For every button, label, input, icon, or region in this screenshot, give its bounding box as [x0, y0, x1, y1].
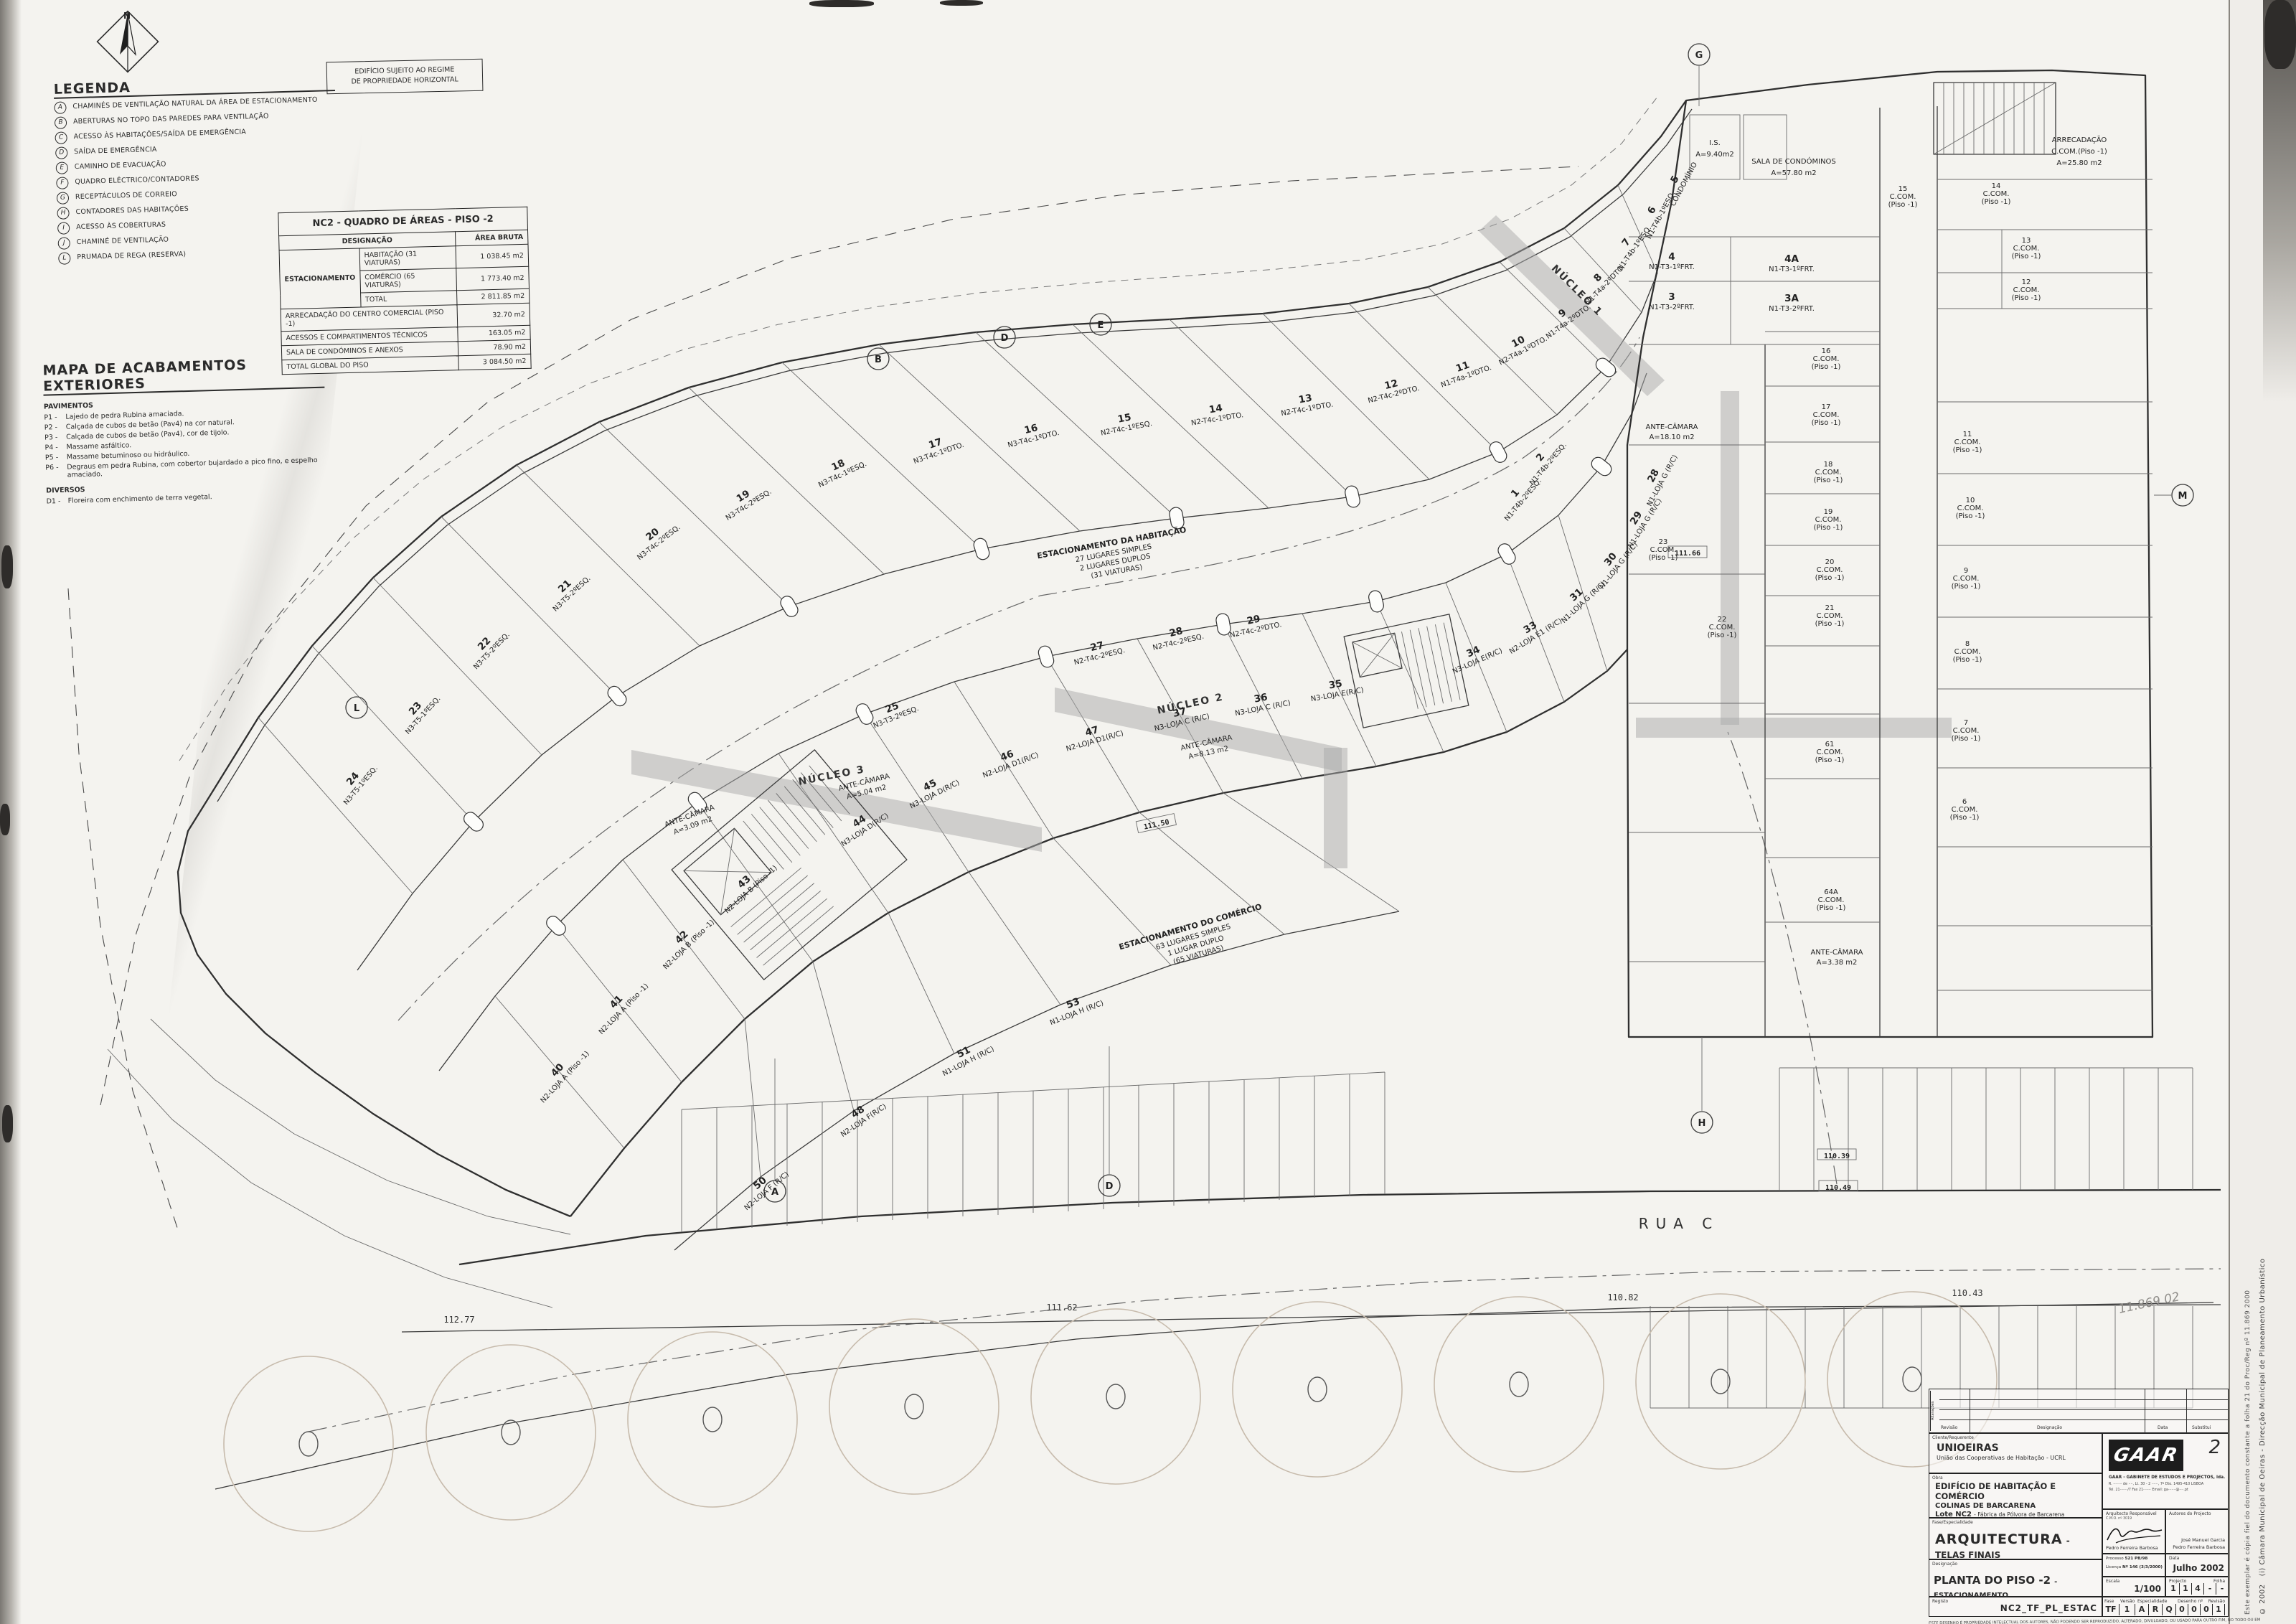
revision-col: Revisão — [1941, 1425, 1957, 1430]
parking-stall-label: 46N2-LOJA D1(R/C) — [977, 740, 1040, 780]
svg-text:C.COM.: C.COM. — [1813, 411, 1840, 419]
parking-stall-label: 43N2-LOJA B (Piso -1) — [715, 855, 779, 915]
storage-stall-label: 15C.COM.(Piso -1) — [1888, 185, 1918, 209]
svg-text:C.COM.: C.COM. — [1815, 516, 1842, 524]
svg-text:23: 23 — [1659, 538, 1668, 546]
svg-text:I.S.: I.S. — [1709, 139, 1721, 147]
svg-text:C.COM.: C.COM. — [1952, 806, 1978, 814]
parking-note-comercio: ESTACIONAMENTO DO COMÉRCIO 63 LUGARES SI… — [1118, 902, 1271, 980]
drawing-title-cell: Designação PLANTA DO PISO -2 - ESTACIONA… — [1929, 1559, 2102, 1597]
revision-col: Substitui — [2192, 1425, 2211, 1430]
parking-stall-label: 19N3-T4c-2ºESQ. — [718, 478, 773, 522]
antecamara-label: ANTE-CÂMARAA=18.10 m2 — [1645, 422, 1698, 441]
svg-text:110.49: 110.49 — [1825, 1184, 1851, 1192]
storage-stall-label: 13C.COM.(Piso -1) — [2012, 237, 2041, 261]
parking-stall-label: 20N3-T4c-2ºESQ. — [629, 514, 682, 562]
svg-text:111.66: 111.66 — [1675, 550, 1700, 558]
svg-text:C.COM.: C.COM. — [1957, 504, 1984, 512]
svg-text:A=57.80 m2: A=57.80 m2 — [1771, 169, 1816, 177]
parking-stall-label: 36N3-LOJA C (R/C) — [1232, 687, 1291, 718]
svg-text:C.COM.: C.COM. — [1817, 566, 1843, 574]
logo-cell: GAAR 2 GAAR - GABINETE DE ESTUDOS E PROJ… — [2102, 1433, 2229, 1509]
svg-text:21: 21 — [1825, 604, 1835, 612]
svg-text:(Piso -1): (Piso -1) — [1956, 512, 1985, 520]
svg-text:C.COM.: C.COM. — [1650, 546, 1677, 554]
svg-text:C.COM.: C.COM. — [1818, 896, 1845, 904]
code-strip: Fase Versão Especialidade Desenho nº Rev… — [2102, 1597, 2229, 1617]
antecamara-label: ANTE-CÂMARAA=3.09 m2 — [663, 802, 719, 838]
svg-text:(Piso -1): (Piso -1) — [1812, 419, 1841, 427]
svg-text:L: L — [354, 703, 359, 714]
street-rua-c: RUA C 112.77 111.62 110.82 110.43 — [215, 1190, 2221, 1489]
svg-text:(Piso -1): (Piso -1) — [1982, 198, 2011, 206]
svg-text:(Piso -1): (Piso -1) — [1952, 583, 1981, 591]
margin-copyright: © 2002 (i) Câmara Municipal de Oeiras - … — [2259, 919, 2267, 1615]
lot-sub: - Fábrica da Pólvora de Barcarena — [1974, 1511, 2064, 1518]
parking-stall-label: 25N3-T3-2ºESQ. — [867, 693, 920, 730]
register-code: NC2_TF_PL_ESTAC — [2000, 1603, 2097, 1613]
svg-text:111.50: 111.50 — [1143, 818, 1170, 831]
svg-text:A=25.80 m2: A=25.80 m2 — [2056, 159, 2102, 167]
svg-text:E: E — [1098, 320, 1104, 331]
svg-text:112.77: 112.77 — [443, 1315, 474, 1325]
svg-text:C.COM.: C.COM. — [2013, 245, 2040, 253]
svg-text:(Piso -1): (Piso -1) — [1814, 524, 1843, 532]
wing-storage-labels: 16C.COM.(Piso -1) 17C.COM.(Piso -1) 18C.… — [1649, 182, 2041, 912]
parking-stall-label: 28N1-LOJA G (R/C) — [1635, 448, 1680, 507]
storage-stall-label: 20C.COM.(Piso -1) — [1815, 558, 1845, 582]
svg-text:N1-T3-1ºFRT.: N1-T3-1ºFRT. — [1649, 263, 1695, 271]
author-name: Pedro Ferreira Barbosa — [2173, 1544, 2225, 1550]
svg-text:8: 8 — [1965, 640, 1970, 648]
project-cell: Obra EDIFÍCIO DE HABITAÇÃO E COMÉRCIO CO… — [1929, 1473, 2102, 1518]
svg-text:16: 16 — [1822, 347, 1831, 355]
scale-value: 1/100 — [2134, 1584, 2161, 1594]
storage-stall-label: 14C.COM.(Piso -1) — [1982, 182, 2011, 206]
svg-text:N1-T4b-2ºESQ.: N1-T4b-2ºESQ. — [1503, 477, 1543, 523]
storage-stall-label: 17C.COM.(Piso -1) — [1812, 403, 1841, 427]
svg-text:D: D — [1001, 333, 1009, 344]
parking-stall-label: 15N2-T4c-1ºESQ. — [1098, 408, 1153, 437]
svg-text:N3-T4c-2ºESQ.: N3-T4c-2ºESQ. — [636, 523, 682, 562]
parking-stall-label: 35N3-LOJA E(R/C) — [1308, 675, 1365, 704]
svg-text:18: 18 — [1824, 461, 1833, 469]
svg-text:N3-T5-2ºESQ.: N3-T5-2ºESQ. — [472, 631, 512, 671]
antecamara-label: ANTE-CÂMARAA=3.38 m2 — [1810, 947, 1863, 967]
client-cell: Cliente/Requerente UNIOEIRAS União das C… — [1929, 1433, 2102, 1473]
svg-text:4A: 4A — [1784, 253, 1799, 265]
firm-address: R. ········ de ····, Lt. 30 - 2 ······, … — [2109, 1483, 2203, 1486]
storage-stall-label: 9C.COM.(Piso -1) — [1952, 567, 1981, 591]
drawing-sheet: N EDIFÍCIO SUJEITO AO REGIME DE PROPRIED… — [0, 0, 2296, 1624]
svg-text:9: 9 — [1964, 567, 1968, 575]
svg-text:110.39: 110.39 — [1824, 1153, 1850, 1160]
floor-plan: RUA C 112.77 111.62 110.82 110.43 — [0, 0, 2296, 1624]
date-value: Julho 2002 — [2173, 1563, 2224, 1573]
storage-stall-label: 18C.COM.(Piso -1) — [1814, 461, 1843, 484]
svg-text:N2-LOJA A (Piso -1): N2-LOJA A (Piso -1) — [540, 1050, 591, 1104]
svg-text:C.COM.: C.COM. — [1815, 469, 1842, 477]
revision-col: Data — [2158, 1425, 2168, 1430]
svg-text:(Piso -1): (Piso -1) — [1812, 363, 1841, 371]
parking-stall-label: 28N2-T4c-2ºESQ. — [1149, 621, 1205, 652]
svg-text:C.COM.: C.COM. — [1813, 355, 1840, 363]
authors-cell: Autores do Projecto José Manuel Garcia P… — [2165, 1509, 2229, 1554]
nucleo2-label: NÚCLEO 2 — [1156, 690, 1225, 716]
parking-stall-label: 40N2-LOJA A (Piso -1) — [530, 1041, 591, 1104]
architect-reg: C.M.O. nº 3019 — [2106, 1517, 2132, 1521]
svg-text:M: M — [2178, 491, 2188, 502]
svg-text:(Piso -1): (Piso -1) — [1950, 814, 1980, 822]
right-wing — [1627, 70, 2152, 1037]
svg-text:10: 10 — [1966, 497, 1975, 504]
drive-aisle-centerline — [398, 337, 1837, 1184]
revision-table: Alterações Revisão Designação Data Subst… — [1929, 1389, 2229, 1433]
svg-text:N3-T5-2ºESQ.: N3-T5-2ºESQ. — [552, 575, 593, 614]
parking-stall-label: 2N1-T4b-2ºESQ. — [1519, 433, 1568, 487]
storage-stall-label: 21C.COM.(Piso -1) — [1815, 604, 1845, 628]
surface-parking — [682, 1068, 2193, 1408]
parking-stall-label: 51N1-LOJA H (R/C) — [936, 1034, 995, 1078]
svg-text:11: 11 — [1963, 431, 1972, 438]
firm-contacts: Tel. 21·······/7 Fax 21······· Email: ga… — [2109, 1488, 2188, 1492]
room-sala-condominos: SALA DE CONDÓMINOS A=57.80 m2 — [1751, 156, 1836, 177]
phase-cell: Fase/Especialidade ARQUITECTURA - TELAS … — [1929, 1518, 2102, 1559]
architect-name: Pedro Ferreira Barbosa — [2106, 1545, 2158, 1551]
svg-text:A=3.38 m2: A=3.38 m2 — [1817, 959, 1858, 967]
storage-stall-label: 12C.COM.(Piso -1) — [2012, 278, 2041, 302]
room-is: I.S. A=9.40m2 — [1695, 139, 1734, 159]
parking-stall-label: 31N1-LOJA G (R/C) — [1552, 571, 1607, 625]
drawing-title: PLANTA DO PISO -2 — [1934, 1574, 2051, 1587]
svg-text:C.COM.: C.COM. — [1817, 612, 1843, 620]
firm-name: GAAR - GABINETE DE ESTUDOS E PROJECTOS, … — [2109, 1475, 2225, 1480]
svg-text:(Piso -1): (Piso -1) — [1953, 656, 1982, 664]
svg-text:N1-T3-2ºFRT.: N1-T3-2ºFRT. — [1769, 305, 1815, 313]
svg-text:N3-T5-1ºESQ.: N3-T5-1ºESQ. — [342, 764, 380, 807]
storage-stall-label: 16C.COM.(Piso -1) — [1812, 347, 1841, 371]
svg-text:(Piso -1): (Piso -1) — [1708, 632, 1737, 639]
svg-text:C.COM.: C.COM. — [1983, 190, 2010, 198]
parking-stall-label: 41N2-LOJA A (Piso -1) — [589, 974, 651, 1036]
storage-stall-label: 64AC.COM.(Piso -1) — [1817, 888, 1846, 912]
svg-text:A=18.10 m2: A=18.10 m2 — [1649, 433, 1694, 441]
revision-col: Designação — [2037, 1425, 2062, 1430]
svg-text:13: 13 — [2022, 237, 2031, 245]
svg-text:SALA DE CONDÓMINOS: SALA DE CONDÓMINOS — [1751, 156, 1836, 166]
svg-text:G: G — [1695, 50, 1703, 61]
svg-text:(Piso -1): (Piso -1) — [1815, 756, 1845, 764]
svg-text:19: 19 — [1824, 508, 1833, 516]
storage-stall-label: 10C.COM.(Piso -1) — [1956, 497, 1985, 520]
svg-text:N3-T5-1ºESQ.: N3-T5-1ºESQ. — [404, 695, 442, 736]
svg-text:H: H — [1698, 1118, 1706, 1129]
phase-text: ARQUITECTURA — [1935, 1531, 2063, 1547]
storage-stall-label: 61C.COM.(Piso -1) — [1815, 741, 1845, 764]
svg-text:ANTE-CÂMARA: ANTE-CÂMARA — [1810, 947, 1863, 957]
svg-text:C.COM.: C.COM. — [1954, 438, 1981, 446]
project-title: EDIFÍCIO DE HABITAÇÃO E COMÉRCIO — [1935, 1481, 2102, 1501]
sheet-number: 2 — [2208, 1437, 2221, 1458]
svg-text:(Piso -1): (Piso -1) — [1953, 446, 1982, 454]
date-cell: Data Julho 2002 — [2165, 1554, 2229, 1577]
svg-text:61: 61 — [1825, 741, 1835, 748]
storage-stall-label: 8C.COM.(Piso -1) — [1953, 640, 1982, 664]
parking-stall-label: 4AN1-T3-1ºFRT. — [1769, 253, 1815, 273]
svg-text:A=9.40m2: A=9.40m2 — [1695, 151, 1734, 159]
building-band — [178, 100, 1692, 1250]
svg-text:C.COM.: C.COM. — [1817, 748, 1843, 756]
client-sub: União das Cooperativas de Habitação - UC… — [1937, 1455, 2102, 1461]
svg-text:B: B — [875, 355, 882, 365]
parking-stall-label: 45N3-LOJA D(R/C) — [903, 768, 961, 811]
svg-text:(Piso -1): (Piso -1) — [1815, 574, 1845, 582]
storage-stall-label: 19C.COM.(Piso -1) — [1814, 508, 1843, 532]
svg-text:C.COM.: C.COM. — [1953, 727, 1980, 735]
parking-stall-label: 4N1-T3-1ºFRT. — [1649, 251, 1695, 271]
parking-stall-label: 27N2-T4c-2ºESQ. — [1071, 635, 1126, 667]
parking-stall-label: 10N2-T4a-1ºDTO. — [1492, 324, 1549, 367]
svg-text:110.43: 110.43 — [1952, 1288, 1982, 1298]
parking-stall-label: 23N3-T5-1ºESQ. — [395, 687, 443, 736]
svg-text:3: 3 — [1668, 291, 1675, 303]
parking-stall-label: 13N2-T4c-1ºDTO. — [1279, 389, 1334, 418]
svg-text:110.82: 110.82 — [1607, 1292, 1638, 1303]
svg-text:(Piso -1): (Piso -1) — [2012, 253, 2041, 261]
svg-text:C.COM.: C.COM. — [1890, 193, 1916, 201]
svg-text:(Piso -1): (Piso -1) — [2012, 294, 2041, 302]
parking-stall-label: 24N3-T5-1ºESQ. — [333, 756, 380, 807]
scale-cell: Escala 1/100 — [2102, 1577, 2165, 1597]
stall-dividers-bottom — [495, 515, 1607, 1177]
margin-certification: Este exemplar é cópia fiel do documento … — [2244, 919, 2252, 1615]
project-sub: COLINAS DE BARCARENA — [1935, 1502, 2102, 1510]
svg-text:3A: 3A — [1784, 293, 1799, 304]
svg-text:CONDOMÍNIO: CONDOMÍNIO — [1668, 160, 1699, 207]
parking-stall-label: 50N2-LOJA F (R/C) — [735, 1161, 791, 1212]
svg-text:(Piso -1): (Piso -1) — [1815, 620, 1845, 628]
storage-stall-label: 23C.COM.(Piso -1) — [1649, 538, 1678, 562]
svg-text:7: 7 — [1964, 719, 1968, 727]
svg-text:ARRECADAÇÃO: ARRECADAÇÃO — [2052, 135, 2107, 144]
svg-text:N1-T3-1ºFRT.: N1-T3-1ºFRT. — [1769, 266, 1815, 273]
svg-text:N2-LOJA B (Piso -1): N2-LOJA B (Piso -1) — [662, 919, 717, 971]
svg-text:12: 12 — [2022, 278, 2031, 286]
client-name: UNIOEIRAS — [1937, 1442, 2102, 1454]
street-name: RUA C — [1639, 1215, 1720, 1232]
parking-stall-label: 17N3-T4c-1ºDTO. — [908, 430, 965, 466]
parking-stall-label: 16N3-T4c-1ºDTO. — [1004, 417, 1060, 449]
process-cell: Processo 521 PB/98 Licença Nº 146 (3/3/2… — [2102, 1554, 2165, 1577]
room-arrecadacao: ARRECADAÇÃO C.COM.(Piso -1) A=25.80 m2 — [2051, 135, 2107, 167]
svg-text:14: 14 — [1992, 182, 2001, 190]
svg-text:C.COM.: C.COM. — [1954, 648, 1981, 656]
svg-text:(Piso -1): (Piso -1) — [1814, 477, 1843, 484]
svg-text:N2-LOJA A (Piso -1): N2-LOJA A (Piso -1) — [598, 982, 650, 1036]
parking-stall-label: 3AN1-T3-2ºFRT. — [1769, 293, 1815, 313]
svg-text:(Piso -1): (Piso -1) — [1952, 735, 1981, 743]
svg-text:35: 35 — [1328, 678, 1343, 692]
svg-text:14: 14 — [1208, 403, 1223, 416]
svg-text:17: 17 — [1822, 403, 1831, 411]
parking-stall-label: 21N3-T5-2ºESQ. — [543, 565, 592, 613]
stair-core-nucleo2 — [1344, 614, 1469, 728]
title-block: Alterações Revisão Designação Data Subst… — [1929, 1389, 2229, 1617]
level-badge: 110.39 — [1817, 1149, 1856, 1160]
svg-text:22: 22 — [1718, 616, 1727, 624]
level-badge: 111.50 — [1136, 814, 1176, 833]
parking-stall-label: 33N2-LOJA E1 (R/C) — [1502, 606, 1563, 655]
svg-text:N2-LOJA F(R/C): N2-LOJA F(R/C) — [839, 1102, 888, 1139]
parking-stall-label: 14N2-T4c-1ºDTO. — [1189, 399, 1244, 427]
parking-stall-label: 3N1-T3-2ºFRT. — [1649, 291, 1695, 311]
exterior-stair — [1934, 83, 2056, 154]
svg-text:N1-T3-2ºFRT.: N1-T3-2ºFRT. — [1649, 304, 1695, 311]
parking-stall-label: 11N1-T4a-1ºDTO. — [1436, 352, 1492, 390]
svg-text:N2-LOJA E1 (R/C): N2-LOJA E1 (R/C) — [1508, 617, 1563, 656]
storage-stall-label: 6C.COM.(Piso -1) — [1950, 798, 1980, 822]
storage-stall-label: 11C.COM.(Piso -1) — [1953, 431, 1982, 454]
parking-stall-label: 12N2-T4c-2ºDTO. — [1364, 372, 1420, 405]
svg-text:C.COM.: C.COM. — [2013, 286, 2040, 294]
svg-text:15: 15 — [1899, 185, 1908, 193]
svg-text:13: 13 — [1298, 393, 1313, 406]
firm-logo: GAAR — [2109, 1440, 2183, 1471]
svg-text:C.COM.: C.COM. — [1709, 624, 1736, 632]
svg-text:C.COM.: C.COM. — [1953, 575, 1980, 583]
parking-stall-label: 7N1-T4b-1ºESQ. — [1606, 217, 1653, 272]
parking-stall-label: 48N2-LOJA F(R/C) — [833, 1092, 888, 1139]
svg-text:D: D — [1106, 1181, 1114, 1192]
svg-text:20: 20 — [1825, 558, 1835, 566]
parking-stall-label: 42N2-LOJA B (Piso -1) — [654, 910, 716, 972]
svg-text:4: 4 — [1668, 251, 1675, 263]
svg-text:6: 6 — [1962, 798, 1967, 806]
author-name: José Manuel Garcia — [2181, 1537, 2225, 1543]
svg-text:ANTE-CÂMARA: ANTE-CÂMARA — [1645, 422, 1698, 431]
svg-text:(Piso -1): (Piso -1) — [1817, 904, 1846, 912]
svg-text:111.62: 111.62 — [1046, 1303, 1077, 1313]
svg-text:N2-LOJA F (R/C): N2-LOJA F (R/C) — [743, 1170, 791, 1212]
revision-side-label: Alterações — [1930, 1391, 1940, 1431]
signature — [2103, 1521, 2165, 1546]
parking-stall-label: 22N3-T5-2ºESQ. — [464, 622, 512, 671]
svg-text:(Piso -1): (Piso -1) — [1888, 201, 1918, 209]
project-number-cell: Projecto Folha 1 1 4 - - — [2165, 1577, 2229, 1597]
street-trees — [224, 1292, 1997, 1531]
parking-stall-label: 29N2-T4c-2ºDTO. — [1226, 609, 1282, 640]
register-cell: Registo NC2_TF_PL_ESTAC — [1929, 1597, 2102, 1617]
svg-text:C.COM.(Piso -1): C.COM.(Piso -1) — [2051, 148, 2107, 156]
svg-text:64A: 64A — [1824, 888, 1838, 896]
parking-stall-label: 18N3-T4c-1ºESQ. — [812, 449, 868, 489]
architect-cell: Arquitecto Responsável C.M.O. nº 3019 Pe… — [2102, 1509, 2165, 1554]
storage-stall-label: 7C.COM.(Piso -1) — [1952, 719, 1981, 743]
svg-text:(Piso -1): (Piso -1) — [1649, 554, 1678, 562]
